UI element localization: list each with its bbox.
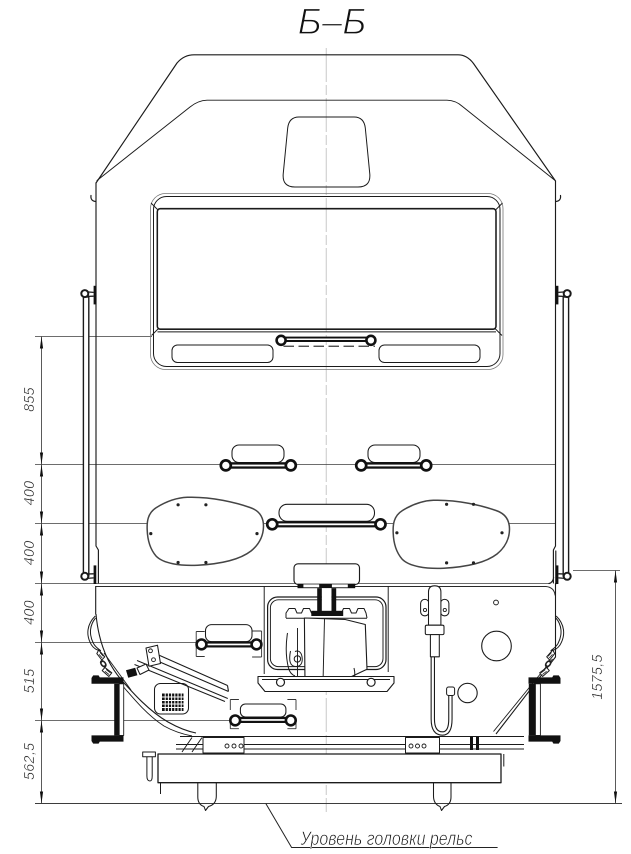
svg-text:400: 400 — [22, 600, 38, 625]
svg-text:400: 400 — [22, 540, 38, 565]
svg-text:855: 855 — [22, 387, 38, 412]
svg-text:562,5: 562,5 — [22, 743, 38, 780]
svg-text:515: 515 — [22, 668, 38, 693]
svg-text:Б–Б: Б–Б — [298, 1, 367, 42]
svg-text:400: 400 — [22, 481, 38, 506]
svg-text:Уровень головки рельс: Уровень головки рельс — [300, 829, 473, 850]
svg-text:1575,5: 1575,5 — [590, 654, 606, 700]
